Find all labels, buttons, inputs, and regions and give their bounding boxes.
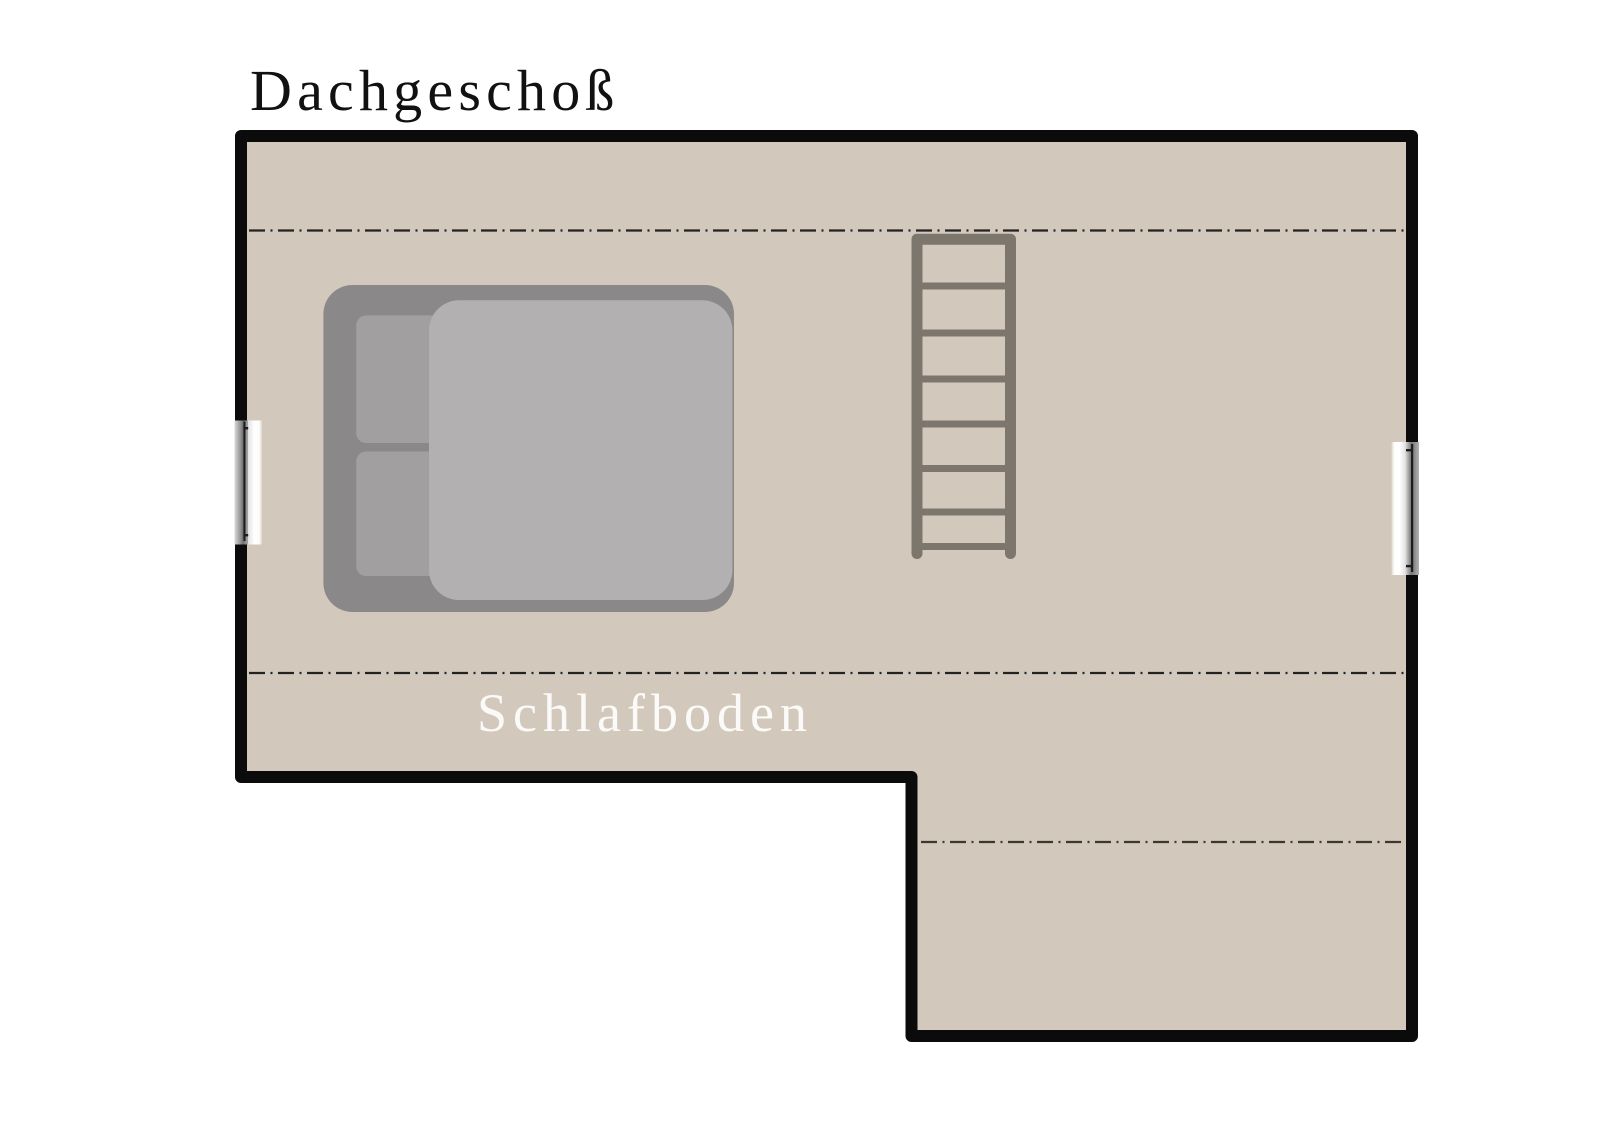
svg-text:Dachgeschoß: Dachgeschoß [250, 58, 620, 123]
svg-text:Schlafboden: Schlafboden [477, 683, 813, 743]
